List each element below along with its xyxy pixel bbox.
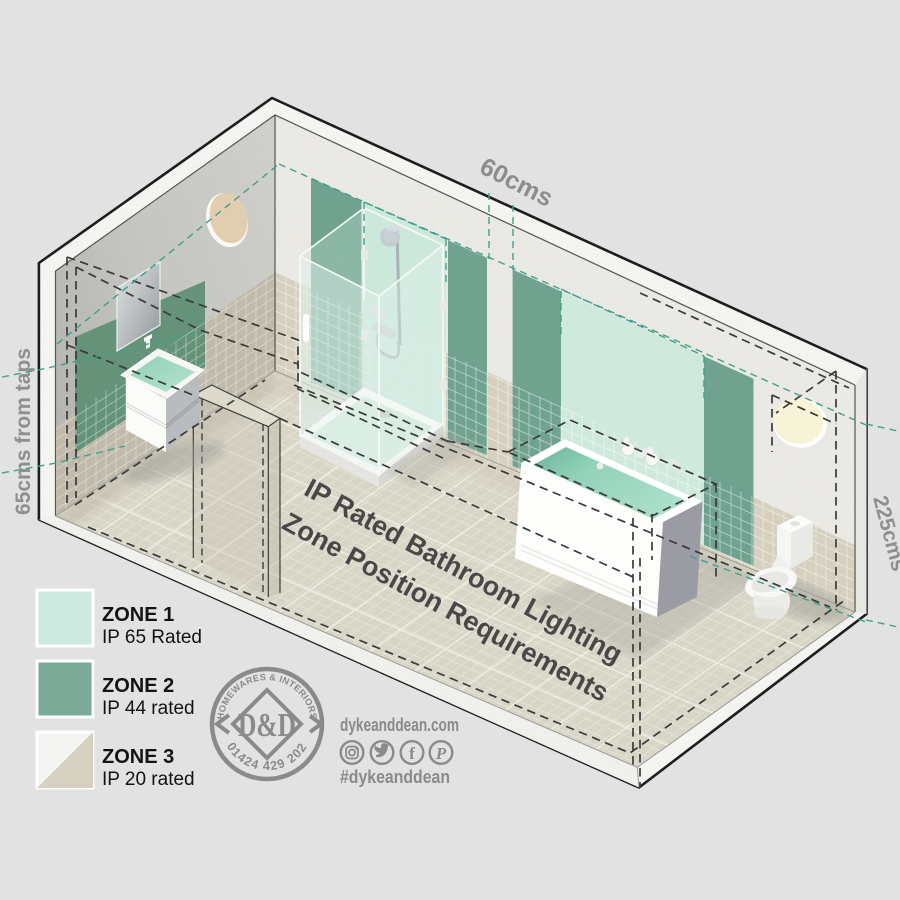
svg-text:f: f [409, 744, 415, 763]
svg-text:65cms from taps: 65cms from taps [12, 348, 35, 515]
svg-text:ZONE 2: ZONE 2 [102, 675, 174, 697]
svg-text:dykeanddean.com: dykeanddean.com [340, 714, 459, 735]
svg-text:ZONE 1: ZONE 1 [102, 604, 174, 626]
svg-text:D&D: D&D [238, 707, 296, 744]
svg-text:IP 20 rated: IP 20 rated [102, 769, 195, 790]
svg-text:ZONE 3: ZONE 3 [102, 746, 174, 768]
svg-text:#dykeanddean: #dykeanddean [340, 766, 450, 787]
svg-text:IP 44 rated: IP 44 rated [102, 698, 195, 719]
svg-text:IP 65 Rated: IP 65 Rated [102, 627, 202, 648]
svg-text:P: P [435, 744, 447, 763]
